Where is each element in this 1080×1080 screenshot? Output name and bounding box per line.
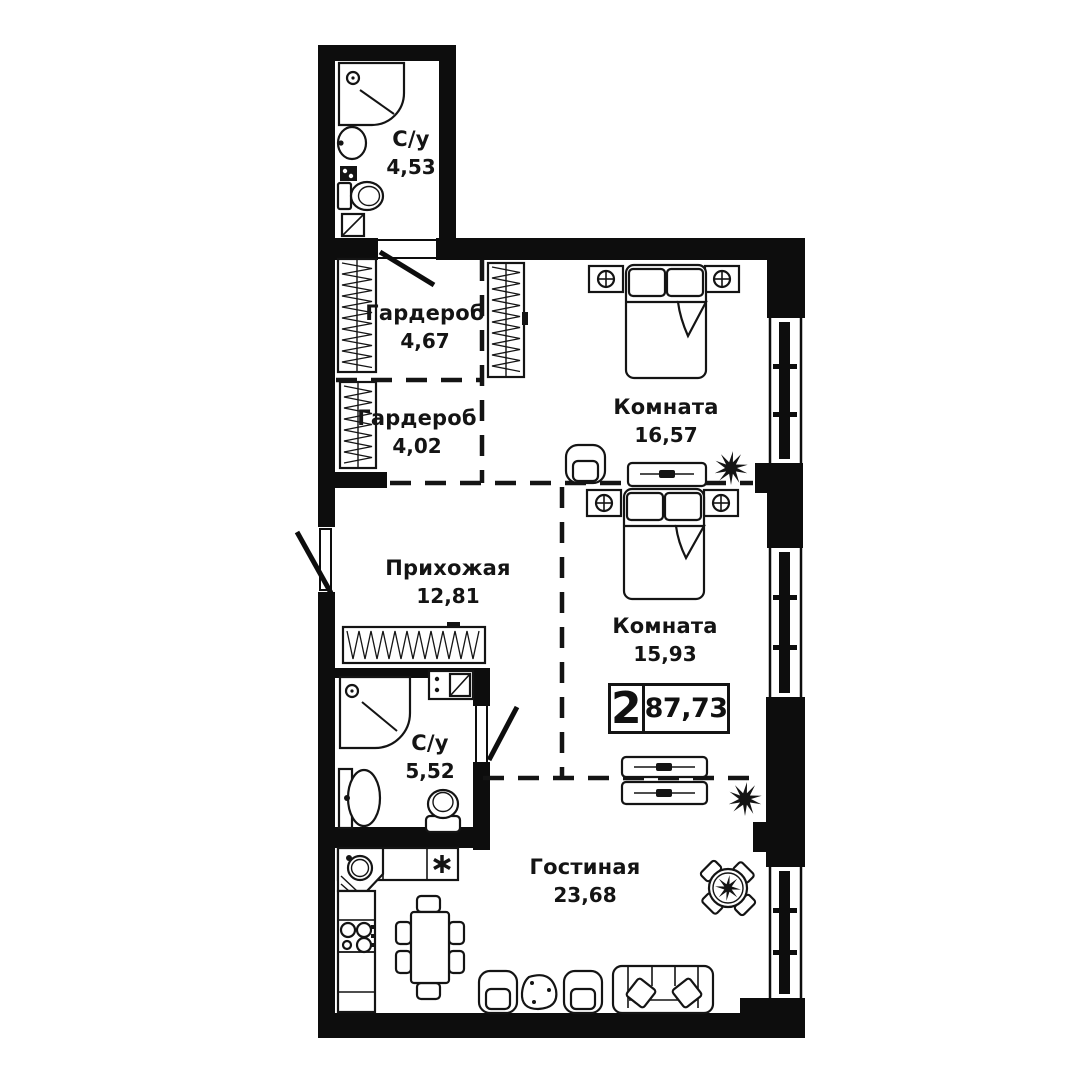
wall — [318, 1013, 805, 1038]
room-area: 4,67 — [365, 330, 485, 353]
windows — [770, 318, 801, 998]
room-area: 16,57 — [613, 424, 718, 447]
chair-symbol — [417, 896, 440, 912]
boiler-symbol — [340, 166, 357, 181]
room-label-bedroom-2: Комната 15,93 — [612, 614, 717, 666]
room-name: Комната — [612, 614, 717, 638]
kitchen-sink-symbol — [338, 848, 383, 891]
room-area: 4,02 — [357, 435, 477, 458]
room-label-living-room: Гостиная 23,68 — [530, 855, 641, 907]
plant-symbol — [729, 782, 762, 816]
wall — [766, 697, 805, 867]
total-area: 87,73 — [645, 686, 728, 731]
room-name: Комната — [613, 395, 718, 419]
pillow-symbol — [665, 493, 701, 520]
chair-symbol — [396, 951, 411, 973]
pillow-symbol — [627, 493, 663, 520]
wall — [318, 592, 335, 1038]
plant-symbol — [715, 451, 748, 485]
bathroom-1-door-icon — [378, 240, 436, 285]
room-name: С/у — [386, 127, 435, 151]
room-area: 5,52 — [405, 760, 454, 783]
toilet-tank-symbol — [338, 183, 351, 209]
wall — [318, 827, 490, 848]
window-icon — [770, 867, 801, 998]
wall — [318, 45, 456, 61]
room-name: С/у — [405, 731, 454, 755]
wall — [318, 45, 335, 527]
wall — [439, 45, 456, 260]
wall — [767, 463, 803, 548]
pillow-symbol — [629, 269, 665, 296]
floor-plan-drawing — [0, 0, 1080, 1080]
apartment-type-badge: 2 87,73 — [608, 683, 730, 734]
chair-symbol — [449, 951, 464, 973]
wall — [755, 463, 769, 493]
room-area: 4,53 — [386, 156, 435, 179]
rooms-count: 2 — [611, 686, 645, 731]
wall — [318, 472, 387, 488]
coffee-table-symbol — [522, 975, 556, 1009]
room-label-bathroom-1: С/у 4,53 — [386, 127, 435, 179]
pillow-symbol — [667, 269, 703, 296]
wall — [767, 238, 805, 318]
kitchen-furniture — [338, 848, 464, 1012]
chair-symbol — [396, 922, 411, 944]
room-area: 12,81 — [385, 585, 510, 608]
wall — [753, 822, 768, 852]
wall — [473, 668, 490, 706]
window-icon — [770, 318, 801, 463]
sink-symbol — [348, 770, 380, 826]
room-label-wardrobe-1: Гардероб 4,67 — [365, 301, 485, 353]
dining-table-symbol — [411, 912, 449, 983]
room-label-wardrobe-2: Гардероб 4,02 — [357, 406, 477, 458]
room-name: Гостиная — [530, 855, 641, 879]
room-area: 15,93 — [612, 643, 717, 666]
window-icon — [770, 548, 801, 697]
room-label-bedroom-1: Комната 16,57 — [613, 395, 718, 447]
floor-plan: С/у 4,53 Гардероб 4,67 Гардероб 4,02 Ком… — [0, 0, 1080, 1080]
room-name: Гардероб — [357, 406, 477, 430]
wall — [318, 238, 378, 260]
bedroom-1-furniture — [566, 265, 748, 486]
entrance-door-icon — [297, 529, 331, 593]
room-label-bathroom-2: С/у 5,52 — [405, 731, 454, 783]
chair-symbol — [417, 983, 440, 999]
room-name: Гардероб — [365, 301, 485, 325]
shower-symbol — [339, 63, 404, 125]
round-table-symbol — [687, 847, 769, 929]
bathroom-2-door-icon — [476, 706, 517, 762]
wall — [436, 238, 805, 260]
room-label-hallway: Прихожая 12,81 — [385, 556, 510, 608]
room-area: 23,68 — [530, 884, 641, 907]
chair-symbol — [449, 922, 464, 944]
room-name: Прихожая — [385, 556, 510, 580]
